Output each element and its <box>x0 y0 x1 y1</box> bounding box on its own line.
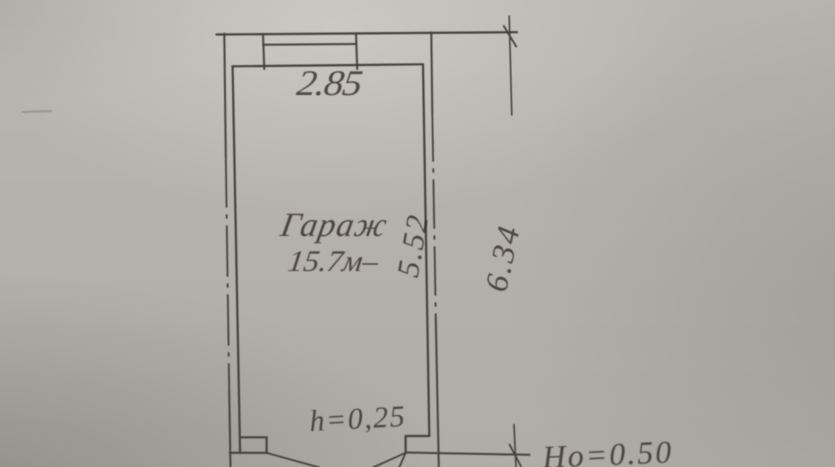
svg-text:h=0,25: h=0,25 <box>309 400 407 438</box>
svg-text:Гараж: Гараж <box>277 206 391 244</box>
svg-text:15.7м–: 15.7м– <box>286 244 382 278</box>
svg-text:5.52: 5.52 <box>390 211 436 280</box>
svg-text:Но=0.50: Но=0.50 <box>541 433 674 467</box>
svg-text:2.85: 2.85 <box>295 63 365 103</box>
svg-text:6.34: 6.34 <box>478 221 527 295</box>
